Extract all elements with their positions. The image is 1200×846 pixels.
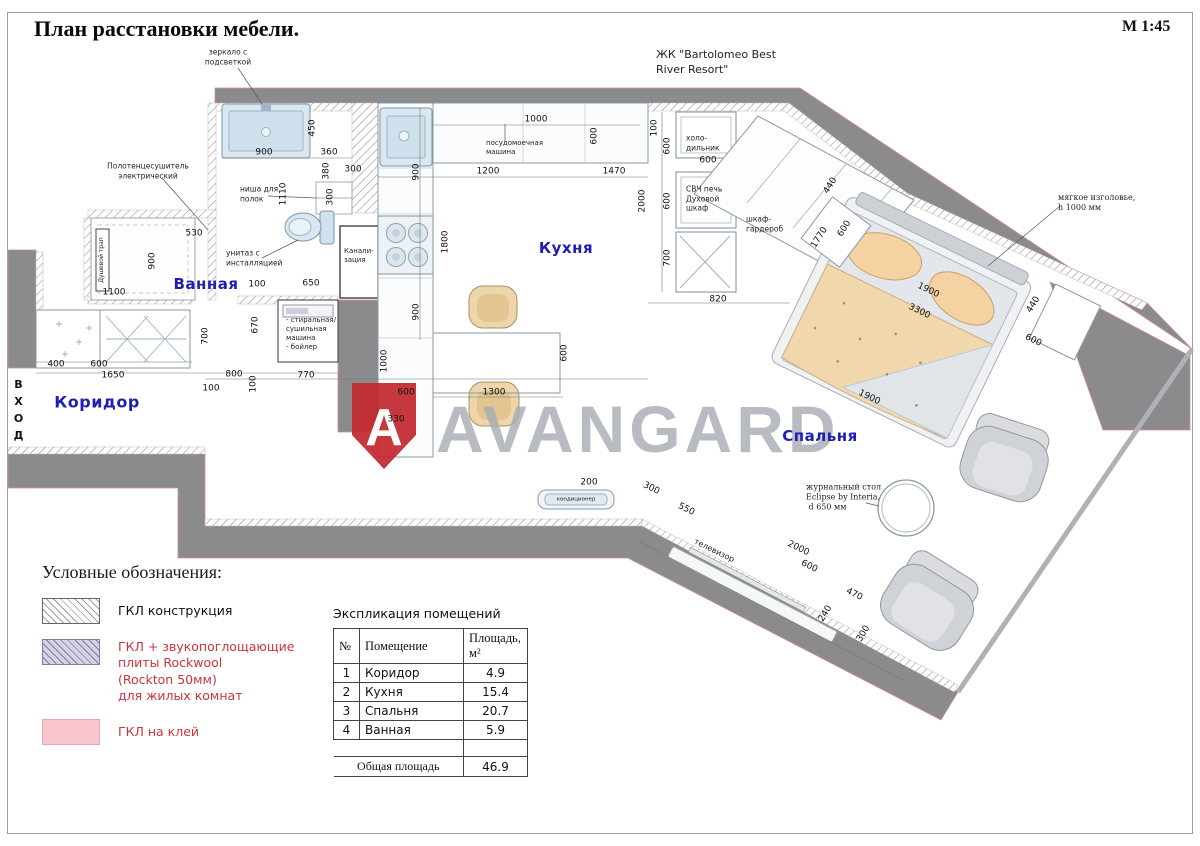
- bar-chair: [469, 286, 517, 328]
- floor-plan-sheet: A AVANGARD 45090036038030030011105309001…: [0, 0, 1200, 846]
- table-cell: [464, 740, 528, 757]
- tall-cabinet: [676, 232, 736, 292]
- table-cell: 4.9: [464, 664, 528, 683]
- watermark: AVANGARD: [436, 391, 840, 467]
- page-title: План расстановки мебели.: [34, 16, 299, 42]
- sewer-shaft: [340, 226, 378, 298]
- table-cell: 2: [334, 683, 360, 702]
- legend-items: ГКЛ конструкцияГКЛ + звукопоглощающие пл…: [42, 598, 342, 745]
- area-table-title: Экспликация помещений: [333, 606, 528, 621]
- table-row: 4Ванная5.9: [334, 721, 528, 740]
- legend-item: ГКЛ на клей: [42, 719, 342, 745]
- table-row: 2Кухня15.4: [334, 683, 528, 702]
- table-row: 1Коридор4.9: [334, 664, 528, 683]
- fridge: [676, 112, 736, 158]
- legend-title: Условные обозначения:: [42, 562, 342, 583]
- table-cell: 20.7: [464, 702, 528, 721]
- avangard-logo-letter: A: [365, 399, 403, 457]
- table-total-row: Общая площадь46.9: [334, 757, 528, 777]
- coffee-table: [878, 480, 934, 536]
- washer-dryer: [278, 300, 338, 362]
- table-row: 3Спальня20.7: [334, 702, 528, 721]
- stove: [378, 216, 433, 274]
- table-cell: 15.4: [464, 683, 528, 702]
- area-table-block: Экспликация помещений №ПомещениеПлощадь,…: [333, 606, 528, 777]
- area-table-header: №: [334, 629, 360, 664]
- legend: Условные обозначения: ГКЛ конструкцияГКЛ…: [42, 562, 342, 745]
- legend-item-label: ГКЛ + звукопоглощающие плиты Rockwool (R…: [118, 639, 295, 704]
- toilet: [285, 211, 334, 244]
- entrance-label: ВХОД: [12, 378, 25, 446]
- shower: [91, 218, 195, 300]
- kitchen-sink: [380, 108, 432, 166]
- table-cell: [334, 740, 464, 757]
- legend-item: ГКЛ конструкция: [42, 598, 342, 624]
- project-label: ЖК "Bartolomeo Best River Resort": [656, 48, 776, 78]
- scale-label: М 1:45: [1122, 18, 1170, 36]
- legend-item: ГКЛ + звукопоглощающие плиты Rockwool (R…: [42, 639, 342, 704]
- area-table: №ПомещениеПлощадь, м² 1Коридор4.92Кухня1…: [333, 628, 528, 777]
- shelf-niche: [316, 182, 352, 214]
- legend-swatch: [42, 598, 100, 624]
- armchair: [954, 409, 1057, 507]
- table-cell: Ванная: [360, 721, 464, 740]
- table-cell: Коридор: [360, 664, 464, 683]
- table-cell: 5.9: [464, 721, 528, 740]
- right-wall: [958, 349, 1192, 692]
- area-table-header: Помещение: [360, 629, 464, 664]
- bathroom-sink: [222, 104, 310, 158]
- total-value: 46.9: [464, 757, 528, 777]
- table-cell: 3: [334, 702, 360, 721]
- table-cell: Кухня: [360, 683, 464, 702]
- legend-item-label: ГКЛ конструкция: [118, 603, 232, 619]
- table-cell: 1: [334, 664, 360, 683]
- area-table-header: Площадь, м²: [464, 629, 528, 664]
- air-conditioner-unit: [538, 490, 614, 509]
- legend-item-label: ГКЛ на клей: [118, 724, 199, 740]
- table-cell: Спальня: [360, 702, 464, 721]
- avangard-logo: A: [350, 381, 418, 473]
- armchair: [872, 544, 989, 658]
- corridor-closet: [36, 310, 190, 368]
- legend-swatch: [42, 639, 100, 665]
- total-label: Общая площадь: [334, 757, 464, 777]
- legend-swatch: [42, 719, 100, 745]
- table-row-empty: [334, 740, 528, 757]
- table-cell: 4: [334, 721, 360, 740]
